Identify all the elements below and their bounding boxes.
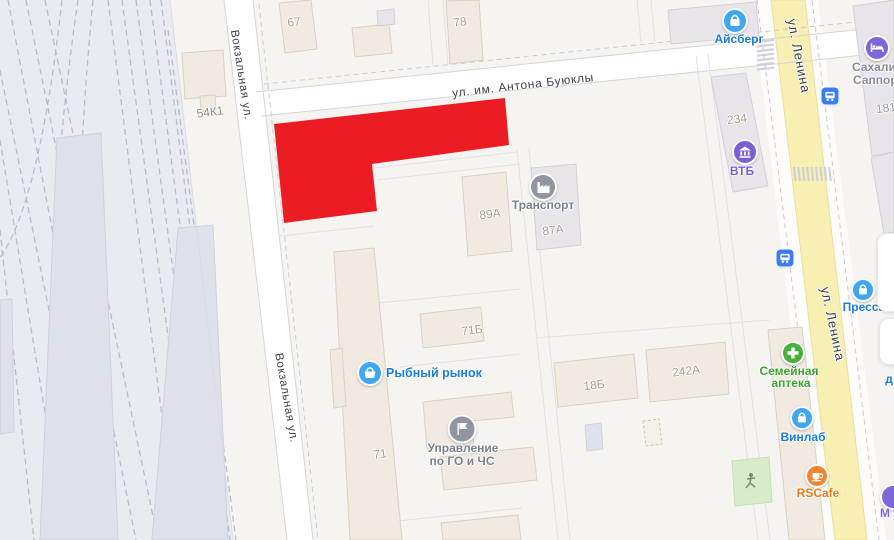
- poi-label-transport[interactable]: Транспорт: [512, 198, 574, 212]
- poi-label-vtb[interactable]: ВТБ: [730, 164, 754, 178]
- building-label-89a: 89А: [479, 206, 502, 222]
- shopping-bag-icon[interactable]: [851, 278, 875, 302]
- building-label-181: 181: [875, 100, 894, 116]
- poi-label-emergency-line2[interactable]: по ГО и ЧС: [429, 454, 494, 468]
- sports-field[interactable]: [732, 457, 772, 506]
- plus-icon[interactable]: [781, 341, 805, 365]
- bed-icon[interactable]: [864, 35, 890, 61]
- building-label-87a: 87А: [542, 222, 565, 238]
- building-small-top: [352, 24, 392, 57]
- building-54k1: [182, 50, 226, 99]
- building-label-78: 78: [453, 14, 468, 30]
- transit-stop-icon[interactable]: [777, 250, 794, 267]
- poi-label-emergency-line1[interactable]: Управление: [428, 441, 499, 455]
- shopping-bag-icon[interactable]: [722, 8, 748, 34]
- poi-label-aisberg[interactable]: Айсберг: [715, 32, 764, 46]
- factory-icon[interactable]: [529, 173, 557, 201]
- building-small-south: [585, 423, 603, 451]
- shopping-bag-icon[interactable]: [790, 406, 814, 430]
- building-dashed-outline[interactable]: [643, 419, 662, 446]
- crosswalk-mid: [794, 167, 831, 181]
- poi-label-clipped-d[interactable]: д: [885, 372, 893, 386]
- building-78: [446, 0, 483, 64]
- transit-stop-icon[interactable]: [822, 88, 839, 105]
- poi-label-rscafe[interactable]: RSCafe: [797, 486, 840, 500]
- poi-label-hotel-line1[interactable]: Сахали: [852, 60, 894, 74]
- flag-icon[interactable]: [448, 415, 477, 444]
- basket-icon[interactable]: [357, 360, 383, 386]
- bank-icon[interactable]: [732, 139, 758, 165]
- building-label-18b: 18Б: [583, 377, 606, 393]
- building-label-71b: 71Б: [461, 322, 484, 338]
- building-label-234: 234: [726, 111, 748, 127]
- building-small-gray-top: [377, 9, 395, 26]
- map-side-panel[interactable]: [879, 318, 894, 365]
- poi-label-fish-market[interactable]: Рыбный рынок: [386, 366, 482, 380]
- map-canvas[interactable]: Вокзальная ул. Вокзальная ул. ул. им. Ан…: [0, 0, 894, 540]
- map-side-panel[interactable]: [877, 233, 894, 312]
- coffee-cup-icon[interactable]: [805, 464, 829, 488]
- poi-label-hotel-line2[interactable]: Саппор: [853, 73, 894, 87]
- poi-label-clipped-m[interactable]: М: [880, 506, 890, 520]
- poi-label-vinlab[interactable]: Винлаб: [781, 430, 826, 444]
- building-label-67: 67: [287, 14, 302, 30]
- poi-label-pharmacy-line2[interactable]: аптека: [771, 376, 810, 390]
- building-label-71: 71: [373, 446, 388, 462]
